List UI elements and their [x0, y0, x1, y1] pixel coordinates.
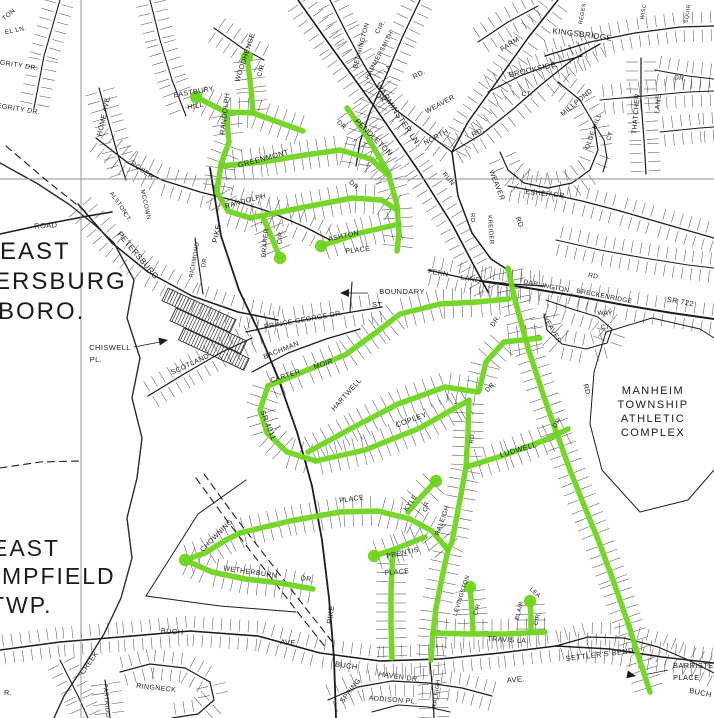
parcel-line: [465, 489, 477, 491]
parcel-line: [161, 668, 162, 680]
parcel-line: [447, 203, 457, 209]
parcel-line: [35, 34, 47, 37]
parcel-line: [293, 649, 296, 661]
parcel-line: [250, 394, 261, 398]
parcel-line: [334, 136, 336, 148]
parcel-line: [333, 33, 344, 39]
parcel-line: [355, 201, 356, 213]
parcel-line: [205, 286, 209, 297]
parcel-line: [444, 662, 445, 674]
parcel-line: [578, 121, 588, 127]
parcel-line: [401, 217, 413, 218]
highlighted-street[interactable]: [466, 400, 469, 467]
parcel-line: [37, 26, 49, 29]
parcel-line: [284, 223, 289, 234]
parcel-line: [300, 504, 302, 516]
parcel-line: [458, 374, 460, 386]
parcel-line: [637, 292, 639, 304]
parcel-line: [674, 317, 676, 329]
parcel-line: [683, 318, 685, 330]
parcel-line: [592, 511, 603, 516]
parcel-line: [404, 685, 405, 697]
street-label: FARM: [499, 36, 520, 53]
parcel-line: [334, 0, 345, 2]
street-label: DR.: [335, 119, 349, 133]
parcel-line: [639, 35, 641, 47]
parcel-line: [690, 268, 691, 280]
parcel-line: [378, 189, 390, 192]
parcel-line: [258, 513, 261, 525]
parcel-line: [319, 189, 321, 201]
parcel-line: [471, 305, 472, 317]
highlighted-street[interactable]: [308, 387, 478, 452]
parcel-line: [570, 349, 572, 361]
parcel-line: [310, 654, 313, 666]
parcel-line: [613, 566, 624, 570]
parcel-line: [479, 466, 483, 477]
street-label: LANE: [654, 94, 663, 114]
parcel-line: [712, 304, 714, 316]
parcel-line: [345, 137, 348, 149]
road-line: [641, 58, 646, 174]
parcel-line: [378, 448, 382, 459]
parcel-line: [381, 396, 387, 407]
parcel-line: [559, 93, 567, 102]
parcel-line: [423, 668, 424, 680]
parcel-line: [163, 35, 175, 38]
parcel-line: [572, 510, 583, 515]
parcel-line: [318, 501, 320, 513]
highlighted-routes[interactable]: [185, 57, 650, 692]
parcel-line: [390, 325, 397, 334]
road-line: [606, 318, 714, 338]
parcel-line: [338, 459, 341, 471]
parcel-line: [327, 60, 337, 67]
parcel-line: [306, 634, 309, 646]
parcel-line: [263, 623, 266, 635]
parcel-line: [452, 446, 464, 447]
street-label: RD.: [588, 272, 602, 281]
parcel-line: [286, 326, 289, 338]
parcel-line: [468, 371, 480, 374]
parcel-line: [362, 689, 364, 701]
parcel-line: [347, 335, 354, 345]
parcel-line: [517, 81, 522, 92]
parcel-line: [389, 76, 400, 81]
parcel-line: [520, 288, 521, 300]
parcel-line: [333, 68, 343, 75]
parcel-line: [47, 57, 59, 60]
parcel-line: [440, 152, 447, 162]
parcel-line: [20, 632, 22, 644]
parcel-line: [681, 267, 683, 279]
parcel-line: [578, 42, 581, 54]
parcel-line: [103, 88, 115, 91]
parcel-line: [252, 166, 253, 178]
parcel-line: [133, 171, 138, 182]
parcel-line: [404, 521, 407, 533]
parcel-line: [564, 492, 575, 496]
parcel-line: [91, 110, 103, 113]
parcel-line: [671, 211, 674, 223]
parcel-line: [542, 337, 550, 346]
highlighted-street[interactable]: [391, 551, 393, 658]
parcel-line: [304, 210, 306, 222]
parcel-line: [536, 33, 545, 40]
parcel-line: [473, 252, 484, 258]
parcel-line: [221, 618, 222, 630]
parcel-line: [651, 683, 662, 687]
parcel-line: [163, 651, 164, 663]
highlighted-street[interactable]: [268, 299, 509, 386]
parcel-line: [544, 617, 545, 629]
parcel-line: [337, 440, 343, 451]
parcel-line: [641, 639, 643, 651]
parcel-line: [596, 572, 607, 576]
parcel-line: [236, 92, 248, 93]
parcel-line: [620, 587, 631, 591]
street-label: BROOKSIDE: [508, 60, 557, 80]
parcel-line: [359, 296, 361, 308]
parcel-line: [210, 149, 221, 153]
parcel-line: [330, 29, 341, 34]
parcel-line: [329, 461, 332, 473]
parcel-line: [362, 313, 364, 325]
parcel-line: [334, 442, 337, 454]
street-label: HAMMERSMITH: [364, 30, 395, 81]
parcel-line: [216, 691, 228, 694]
parcel-line: [471, 659, 472, 671]
street-label: AVE.: [506, 674, 525, 685]
parcel-line: [379, 311, 386, 320]
parcel-line: [474, 449, 478, 460]
parcel-line: [361, 436, 364, 448]
parcel-line: [136, 5, 148, 8]
parcel-line: [133, 639, 134, 651]
parcel-line: [709, 322, 711, 334]
parcel-line: [541, 26, 550, 33]
parcel-line: [42, 8, 54, 11]
parcel-line: [64, 645, 65, 657]
parcel-line: [666, 32, 668, 44]
parcel-line: [395, 185, 407, 188]
parcel-line: [322, 53, 332, 60]
parcel-line: [359, 164, 371, 166]
parcel-line: [121, 151, 132, 155]
parcel-line: [117, 622, 118, 634]
parcel-line: [82, 643, 83, 655]
parcel-line: [654, 263, 656, 275]
highlighted-street[interactable]: [247, 57, 253, 113]
parcel-line: [293, 160, 295, 172]
hatched-block: [162, 288, 236, 332]
route-endpoint-dot[interactable]: [179, 554, 191, 566]
parcel-line: [537, 427, 541, 438]
parcel-line: [516, 163, 524, 172]
parcel-line: [137, 652, 140, 664]
parcel-line: [401, 5, 412, 10]
parcel-line: [142, 669, 145, 681]
parcel-line: [265, 584, 266, 596]
parcel-line: [119, 146, 131, 149]
parcel-line: [372, 317, 379, 326]
parcel-line: [170, 669, 171, 681]
parcel-line: [554, 78, 561, 87]
parcel-line: [322, 207, 324, 219]
parcel-line: [430, 687, 432, 699]
parcel-line: [303, 522, 305, 534]
parcel-line: [579, 156, 590, 160]
street-label: ADDISON PL.: [369, 695, 418, 705]
parcel-line: [365, 425, 371, 436]
parcel-line: [321, 518, 323, 530]
parcel-line: [141, 22, 153, 25]
parcel-line: [373, 420, 379, 431]
parcel-line: [564, 628, 567, 640]
parcel-line: [544, 40, 548, 51]
parcel-line: [708, 271, 709, 283]
parcel-line: [599, 581, 610, 585]
parcel-line: [252, 117, 256, 128]
parcel-line: [230, 147, 241, 151]
parcel-line: [649, 674, 660, 678]
parcel-line: [336, 154, 338, 166]
parcel-line: [52, 39, 64, 42]
parcel-line: [328, 346, 332, 357]
parcel-line: [217, 558, 219, 570]
parcel-line: [502, 269, 504, 281]
parcel-line: [363, 435, 367, 446]
parcel-line: [157, 163, 162, 174]
parcel-line: [64, 657, 75, 662]
parcel-line: [405, 0, 416, 2]
parcel-line: [468, 264, 471, 276]
parcel-line: [571, 165, 578, 175]
parcel-line: [267, 511, 270, 523]
parcel-line: [327, 366, 331, 377]
parcel-line: [710, 253, 711, 265]
area-label: MANHEIM: [622, 385, 684, 397]
parcel-line: [431, 516, 437, 527]
parcel-line: [512, 3, 518, 14]
parcel-line: [621, 83, 622, 95]
parcel-line: [561, 330, 569, 339]
parcel-line: [451, 643, 452, 655]
road-line: [146, 596, 296, 612]
parcel-line: [577, 61, 583, 71]
parcel-line: [129, 654, 132, 666]
parcel-line: [413, 685, 414, 697]
parcel-line: [187, 192, 191, 203]
parcel-line: [648, 34, 650, 46]
parcel-line: [158, 18, 170, 21]
parcel-line: [247, 638, 248, 650]
parcel-line: [387, 517, 390, 529]
parcel-line: [596, 633, 597, 645]
parcel-line: [305, 323, 307, 335]
street-label: RALEIGH: [434, 505, 451, 537]
parcel-line: [88, 101, 100, 104]
parcel-line: [536, 171, 538, 183]
highlighted-street[interactable]: [226, 112, 303, 131]
parcel-line: [613, 102, 614, 114]
parcel-line: [565, 246, 568, 258]
map-canvas: TONEL LN.INTEGRITY DR.INTEGRITY DR.HOME …: [0, 0, 714, 718]
parcel-line: [49, 646, 51, 658]
parcel-line: [129, 151, 136, 160]
parcel-line: [269, 199, 271, 211]
parcel-line: [600, 143, 612, 145]
parcel-line: [134, 270, 142, 279]
parcel-line: [324, 24, 334, 31]
parcel-line: [684, 249, 686, 261]
area-label: BORO.: [0, 298, 85, 325]
parcel-line: [478, 82, 488, 89]
parcel-line: [172, 652, 173, 664]
street-label: PIKE: [325, 605, 337, 625]
parcel-line: [225, 312, 229, 323]
parcel-line: [255, 41, 261, 52]
parcel-line: [559, 649, 560, 661]
parcel-line: [504, 7, 510, 18]
parcel-line: [211, 636, 212, 648]
parcel-line: [390, 535, 394, 546]
parcel-line: [20, 101, 32, 103]
parcel-line: [417, 13, 428, 18]
parcel-line: [497, 461, 501, 472]
parcel-line: [321, 463, 324, 475]
parcel-line: [449, 373, 451, 385]
street-label: CIR.: [276, 229, 284, 244]
parcel-line: [700, 131, 701, 143]
highlighted-street[interactable]: [470, 587, 473, 632]
parcel-line: [523, 169, 531, 178]
parcel-line: [475, 677, 478, 689]
parcel-line: [625, 198, 628, 210]
parcel-line: [39, 96, 51, 98]
parcel-line: [692, 236, 695, 248]
parcel-line: [513, 654, 514, 666]
street-label: RD.: [469, 213, 476, 225]
parcel-line: [465, 236, 476, 242]
parcel-line: [431, 213, 441, 219]
parcel-line: [538, 1, 547, 8]
parcel-line: [664, 135, 665, 147]
street-label: RD.: [471, 126, 486, 138]
parcel-line: [198, 661, 204, 671]
street-label: INTEGRITY DR.: [0, 57, 39, 73]
parcel-line: [157, 79, 168, 82]
parcel-line: [497, 103, 504, 112]
street-label: PLACE: [339, 494, 365, 504]
parcel-line: [509, 190, 511, 202]
road-line: [452, 152, 508, 270]
parcel-line: [456, 411, 462, 421]
parcel-line: [547, 19, 556, 26]
parcel-line: [455, 280, 458, 292]
parcel-line: [231, 295, 235, 306]
parcel-line: [447, 395, 453, 405]
parcel-line: [691, 132, 692, 144]
street-label: BUCH: [688, 686, 712, 700]
parcel-line: [703, 113, 704, 125]
parcel-line: [185, 616, 186, 628]
parcel-line: [284, 161, 286, 173]
parcel-line: [701, 238, 704, 250]
parcel-line: [648, 152, 660, 153]
parcel-line: [57, 22, 69, 25]
parcel-line: [337, 113, 347, 120]
parcel-line: [593, 564, 604, 568]
parcel-line: [652, 313, 654, 325]
parcel-line: [482, 107, 492, 114]
parcel-line: [189, 375, 195, 385]
street-label: BUCH: [334, 659, 358, 671]
parcel-line: [371, 431, 375, 442]
parcel-line: [213, 705, 221, 714]
parcel-line: [38, 630, 40, 642]
route-endpoint-dot[interactable]: [315, 240, 327, 252]
parcel-line: [417, 645, 429, 646]
parcel-line: [598, 528, 609, 533]
parcel-line: [369, 319, 376, 329]
parcel-line: [86, 702, 97, 707]
parcel-line: [518, 58, 528, 65]
parcel-line: [217, 93, 222, 104]
parcel-line: [146, 650, 149, 662]
parcel-line: [368, 670, 370, 682]
parcel-line: [227, 215, 231, 226]
parcel-line: [244, 221, 248, 232]
parcel-line: [655, 631, 658, 643]
parcel-line: [326, 685, 331, 696]
parcel-line: [351, 642, 353, 654]
parcel-line: [689, 216, 692, 228]
parcel-line: [377, 176, 385, 185]
parcel-line: [589, 104, 599, 110]
parcel-line: [260, 302, 262, 314]
hatched-block: [170, 308, 247, 354]
parcel-line: [167, 48, 178, 51]
street-label: MILLPOND: [560, 88, 594, 118]
parcel-line: [285, 437, 293, 446]
parcel-line: [389, 392, 395, 403]
parcel-line: [288, 5, 298, 12]
parcel-line: [401, 530, 405, 541]
parcel-line: [360, 643, 362, 655]
street-label: RD.: [514, 216, 525, 231]
parcel-line: [300, 115, 304, 126]
route-endpoint-dot[interactable]: [430, 475, 442, 487]
parcel-line: [565, 330, 567, 342]
parcel-line: [207, 158, 218, 162]
parcel-line: [365, 344, 372, 354]
parcel-line: [308, 2, 318, 9]
parcel-line: [509, 331, 521, 334]
street-labels: TONEL LN.INTEGRITY DR.INTEGRITY DR.HOME …: [0, 3, 714, 718]
parcel-line: [499, 303, 500, 315]
route-endpoint-dot[interactable]: [368, 550, 380, 562]
highlighted-street[interactable]: [433, 632, 545, 634]
parcel-line: [357, 110, 367, 117]
parcel-line: [449, 126, 460, 132]
parcel-line: [657, 245, 659, 257]
parcel-line: [370, 170, 378, 179]
parcel-line: [692, 319, 694, 331]
parcel-line: [231, 132, 243, 133]
route-endpoint-dot[interactable]: [274, 252, 286, 264]
parcel-line: [378, 515, 381, 527]
